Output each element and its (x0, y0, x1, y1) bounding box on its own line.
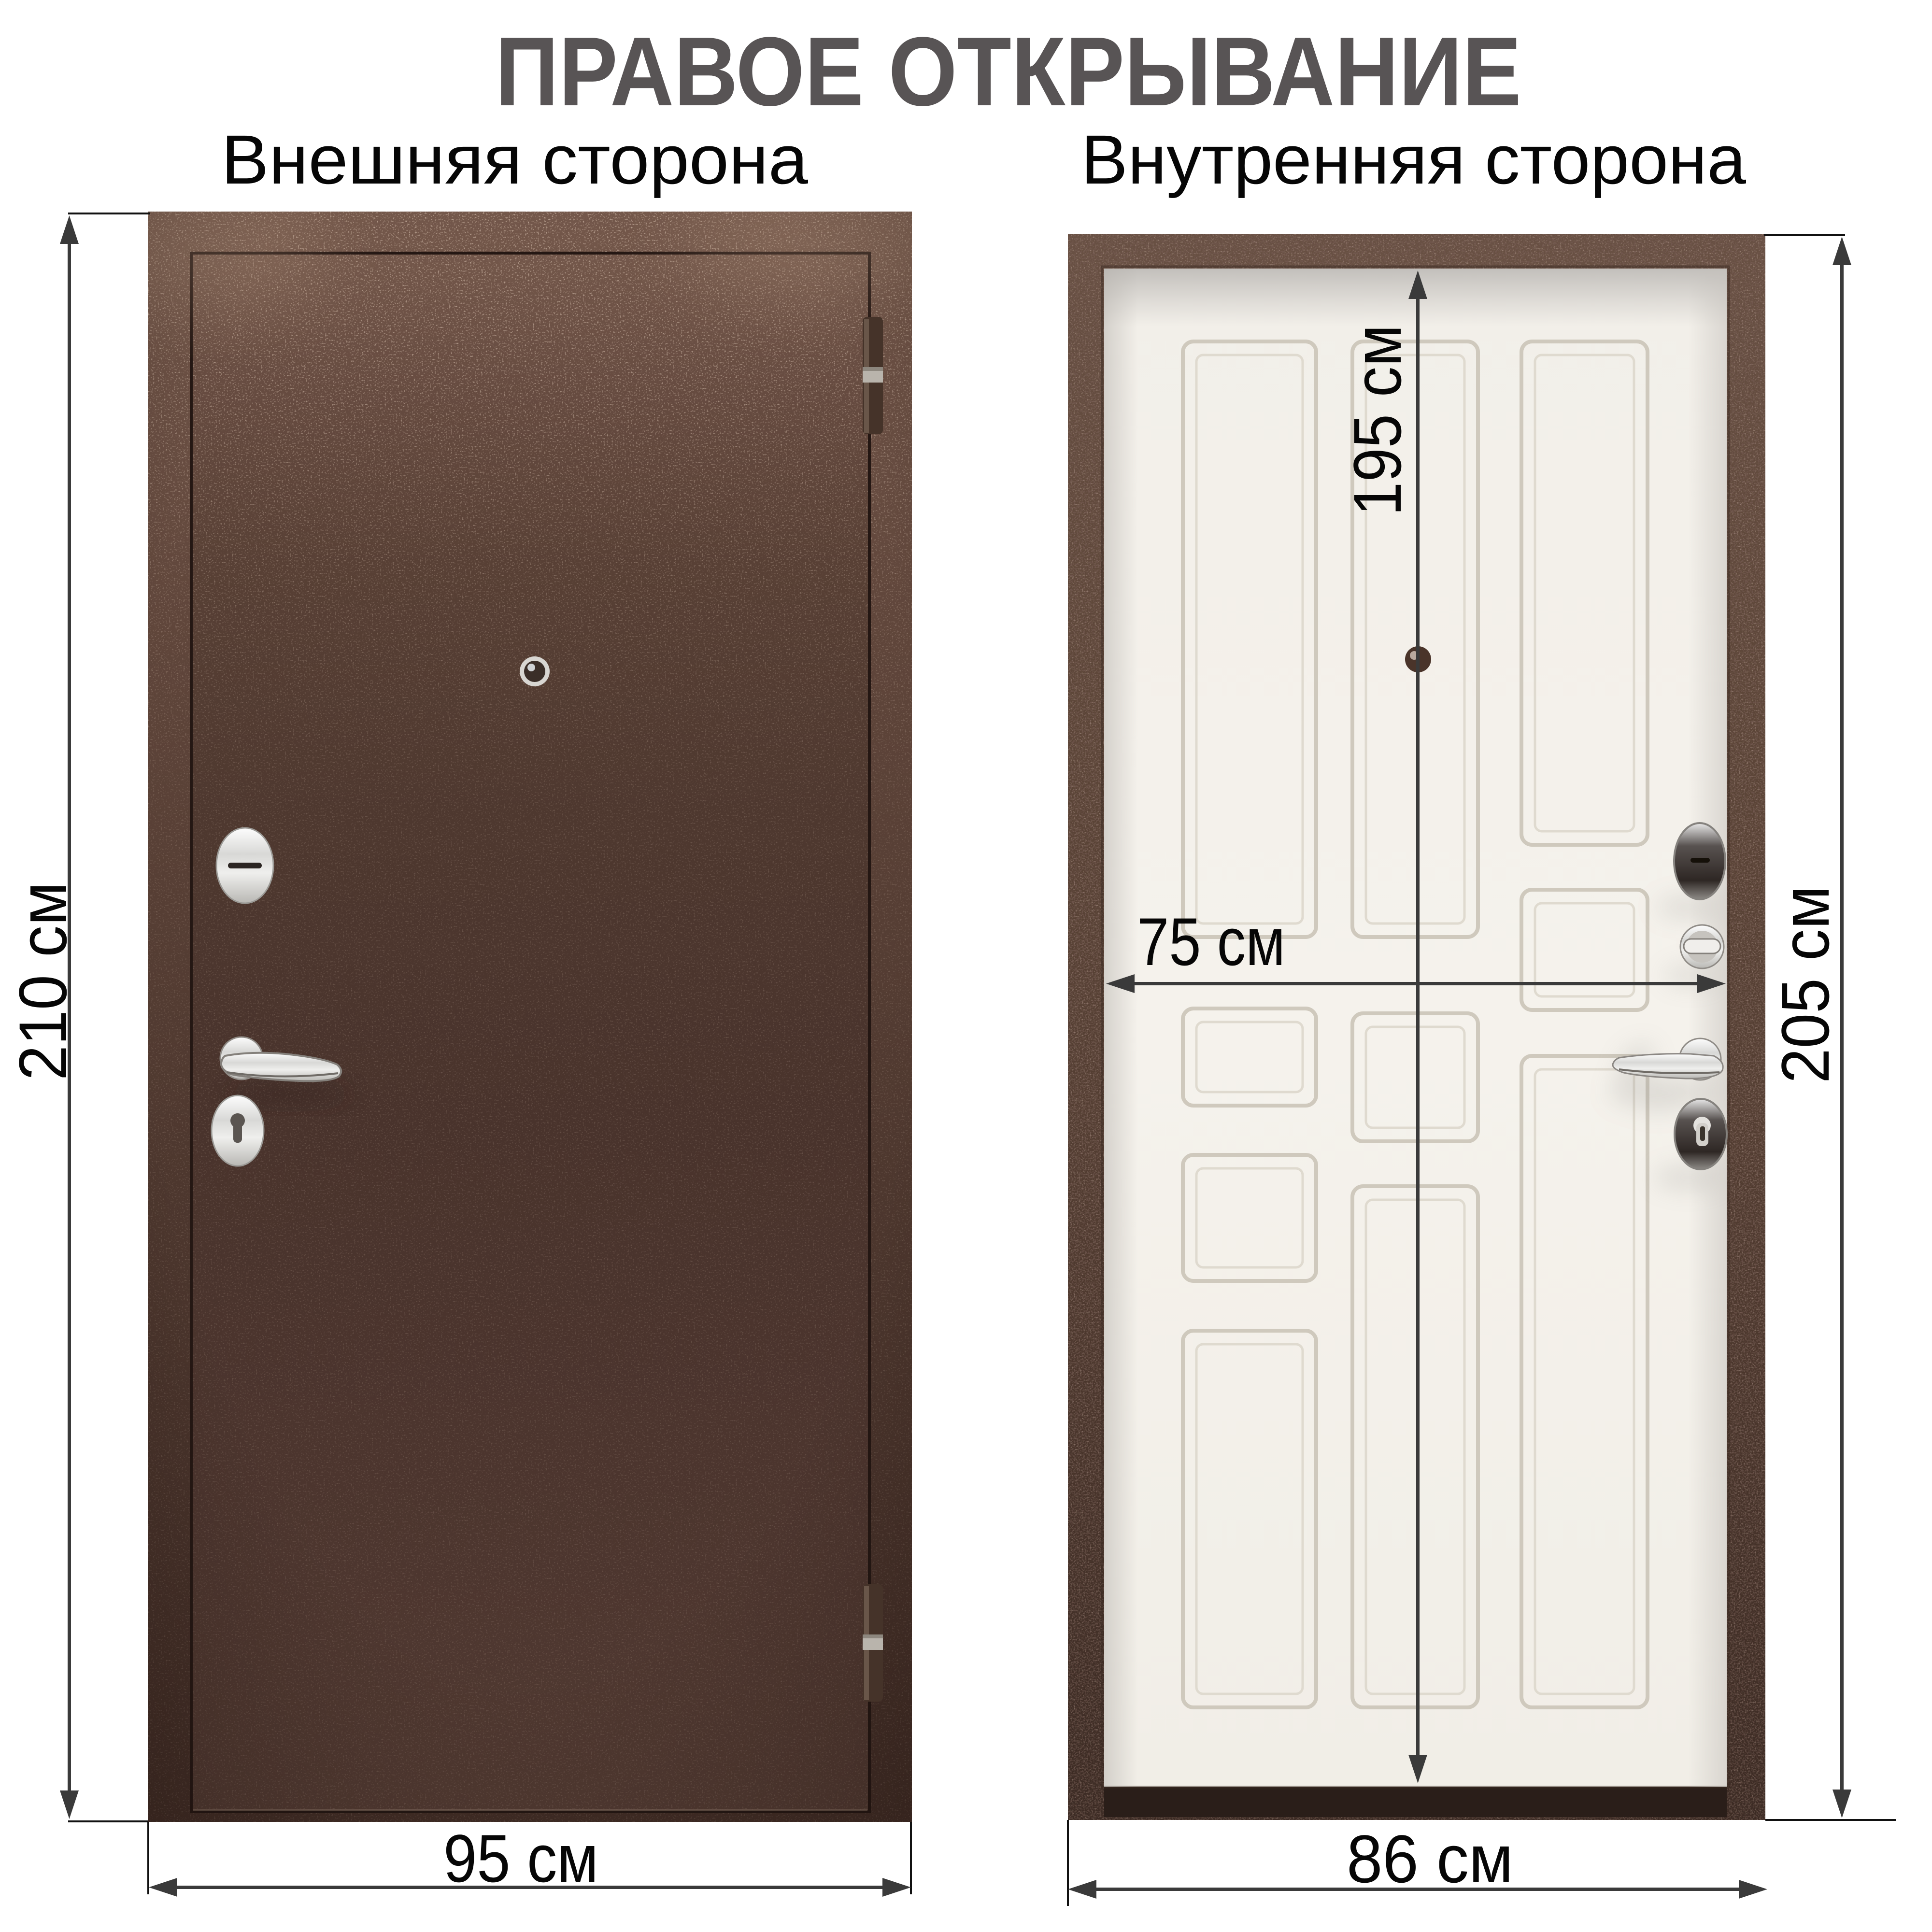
svg-text:75 см: 75 см (1137, 904, 1285, 980)
svg-text:86 см: 86 см (1347, 1821, 1513, 1897)
svg-text:195 см: 195 см (1339, 325, 1415, 516)
svg-text:ПРАВОЕ ОТКРЫВАНИЕ: ПРАВОЕ ОТКРЫВАНИЕ (495, 17, 1521, 127)
svg-text:Внешняя сторона: Внешняя сторона (221, 121, 809, 199)
svg-text:Внутренняя сторона: Внутренняя сторона (1081, 121, 1747, 199)
svg-text:210 см: 210 см (5, 882, 81, 1080)
svg-text:95 см: 95 см (443, 1820, 598, 1896)
svg-text:205 см: 205 см (1767, 886, 1843, 1083)
